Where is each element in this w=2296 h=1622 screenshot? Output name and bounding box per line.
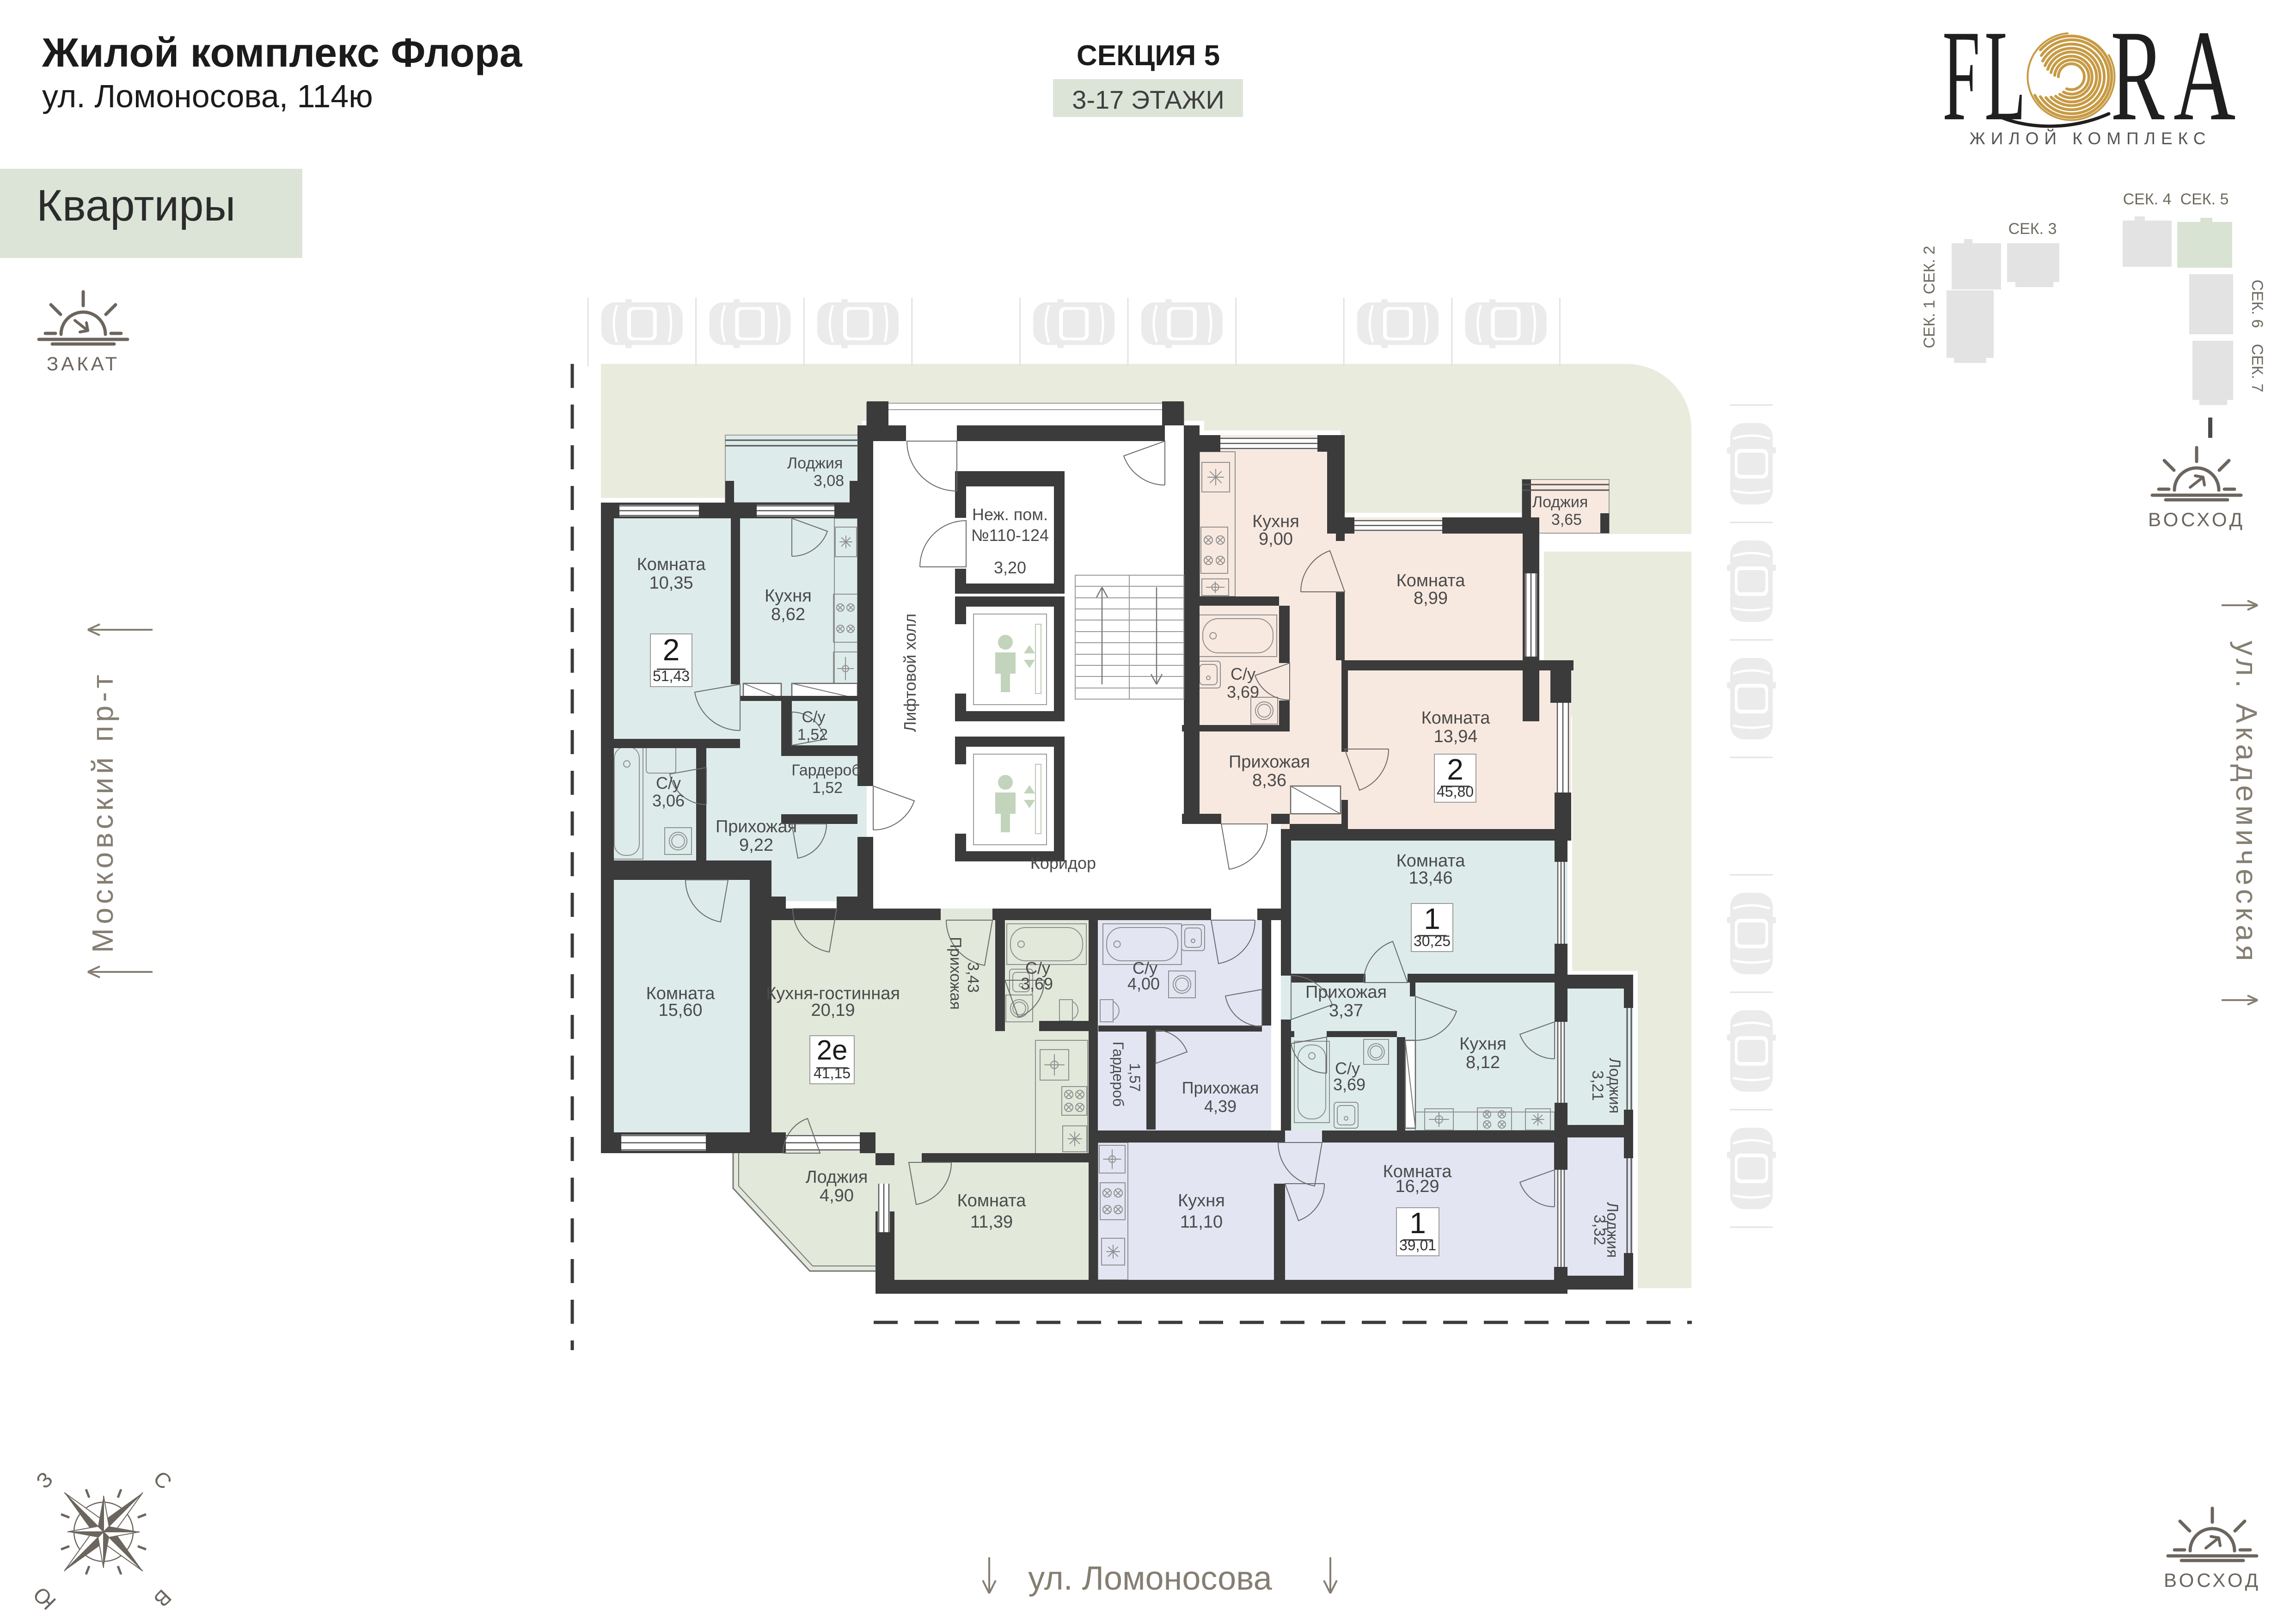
svg-text:2: 2 bbox=[1447, 753, 1463, 786]
svg-text:Комната: Комната bbox=[1396, 851, 1466, 871]
svg-text:Гардероб: Гардероб bbox=[791, 762, 861, 779]
svg-text:Комната: Комната bbox=[1421, 708, 1491, 728]
svg-text:Московский пр-т: Московский пр-т bbox=[86, 671, 119, 952]
svg-text:С/у: С/у bbox=[656, 774, 681, 793]
svg-text:3,37: 3,37 bbox=[1329, 1001, 1363, 1020]
svg-text:4,90: 4,90 bbox=[820, 1186, 854, 1205]
svg-text:15,60: 15,60 bbox=[658, 1001, 702, 1020]
svg-text:ЖИЛОЙ КОМПЛЕКС: ЖИЛОЙ КОМПЛЕКС bbox=[1970, 129, 2211, 148]
svg-text:СЕК. 3: СЕК. 3 bbox=[2008, 220, 2057, 238]
svg-text:11,39: 11,39 bbox=[970, 1212, 1013, 1232]
svg-text:Комната: Комната bbox=[957, 1191, 1027, 1210]
svg-text:45,80: 45,80 bbox=[1437, 783, 1474, 800]
svg-text:СЕКЦИЯ 5: СЕКЦИЯ 5 bbox=[1077, 40, 1220, 72]
svg-text:1: 1 bbox=[1424, 902, 1440, 935]
svg-text:2е: 2е bbox=[817, 1035, 848, 1066]
svg-text:Прихожая: Прихожая bbox=[1182, 1078, 1259, 1097]
svg-text:Неж. пом.: Неж. пом. bbox=[972, 505, 1048, 524]
svg-text:Гардероб: Гардероб bbox=[1110, 1042, 1127, 1107]
svg-text:8,99: 8,99 bbox=[1414, 589, 1448, 608]
svg-text:Комната: Комната bbox=[1396, 571, 1466, 590]
svg-text:ул. Академическая: ул. Академическая bbox=[2230, 641, 2263, 965]
svg-text:1,57: 1,57 bbox=[1127, 1063, 1143, 1092]
svg-text:Лоджия: Лоджия bbox=[1606, 1058, 1623, 1113]
svg-text:39,01: 39,01 bbox=[1399, 1237, 1436, 1253]
svg-text:Лоджия: Лоджия bbox=[787, 455, 843, 472]
svg-text:3,69: 3,69 bbox=[1227, 682, 1259, 701]
svg-text:3,69: 3,69 bbox=[1021, 974, 1053, 993]
svg-text:30,25: 30,25 bbox=[1414, 933, 1451, 949]
svg-text:Прихожая: Прихожая bbox=[947, 937, 964, 1010]
svg-text:Прихожая: Прихожая bbox=[1229, 752, 1310, 772]
svg-text:Комната: Комната bbox=[637, 555, 706, 574]
svg-text:13,46: 13,46 bbox=[1408, 868, 1452, 888]
svg-text:СЕК. 6: СЕК. 6 bbox=[2248, 280, 2266, 328]
svg-text:СЕК. 1: СЕК. 1 bbox=[1921, 300, 1938, 349]
svg-text:41,15: 41,15 bbox=[814, 1065, 851, 1081]
svg-text:A: A bbox=[2174, 3, 2235, 148]
svg-text:Лифтовой холл: Лифтовой холл bbox=[900, 614, 919, 732]
svg-text:1,52: 1,52 bbox=[797, 726, 828, 743]
svg-text:51,43: 51,43 bbox=[653, 668, 690, 684]
svg-text:3,08: 3,08 bbox=[814, 472, 844, 490]
svg-text:СЕК. 5: СЕК. 5 bbox=[2180, 190, 2229, 208]
svg-text:Кухня: Кухня bbox=[1459, 1034, 1506, 1054]
svg-text:Прихожая: Прихожая bbox=[716, 817, 797, 836]
svg-text:L: L bbox=[1984, 3, 2026, 147]
svg-text:Кухня: Кухня bbox=[1178, 1191, 1225, 1210]
svg-text:9,22: 9,22 bbox=[739, 836, 773, 855]
svg-text:ВОСХОД: ВОСХОД bbox=[2148, 509, 2245, 530]
svg-text:16,29: 16,29 bbox=[1395, 1177, 1439, 1196]
svg-text:Квартиры: Квартиры bbox=[37, 181, 236, 230]
svg-text:R: R bbox=[2111, 3, 2165, 148]
svg-text:20,19: 20,19 bbox=[811, 1001, 855, 1020]
svg-text:СЕК. 2: СЕК. 2 bbox=[1921, 246, 1938, 295]
svg-text:СЕК. 7: СЕК. 7 bbox=[2248, 344, 2266, 393]
svg-text:3,20: 3,20 bbox=[994, 558, 1026, 577]
svg-text:3,65: 3,65 bbox=[1551, 511, 1582, 528]
svg-text:8,36: 8,36 bbox=[1252, 771, 1286, 790]
svg-text:Лоджия: Лоджия bbox=[1532, 493, 1588, 511]
svg-text:9,00: 9,00 bbox=[1259, 529, 1293, 549]
svg-text:11,10: 11,10 bbox=[1180, 1212, 1223, 1232]
svg-text:3,43: 3,43 bbox=[964, 962, 982, 993]
svg-text:4,00: 4,00 bbox=[1127, 974, 1160, 993]
svg-text:СЕК. 4: СЕК. 4 bbox=[2123, 190, 2172, 208]
svg-text:8,62: 8,62 bbox=[771, 605, 805, 624]
svg-text:13,94: 13,94 bbox=[1433, 727, 1477, 746]
svg-text:3,21: 3,21 bbox=[1589, 1070, 1606, 1101]
svg-text:4,39: 4,39 bbox=[1204, 1097, 1237, 1116]
svg-text:3-17 ЭТАЖИ: 3-17 ЭТАЖИ bbox=[1072, 85, 1225, 114]
svg-text:Лоджия: Лоджия bbox=[806, 1167, 868, 1187]
svg-text:С/у: С/у bbox=[1231, 664, 1255, 683]
svg-text:Жилой комплекс Флора: Жилой комплекс Флора bbox=[42, 30, 523, 75]
svg-text:ЗАКАТ: ЗАКАТ bbox=[47, 353, 120, 375]
svg-text:1: 1 bbox=[1409, 1206, 1426, 1240]
svg-text:2: 2 bbox=[663, 633, 680, 667]
svg-text:ул. Ломоносова, 114ю: ул. Ломоносова, 114ю bbox=[42, 78, 373, 114]
svg-text:Коридор: Коридор bbox=[1030, 854, 1096, 872]
svg-text:3,32: 3,32 bbox=[1591, 1215, 1608, 1245]
svg-text:8,12: 8,12 bbox=[1466, 1053, 1500, 1072]
svg-text:№110-124: №110-124 bbox=[971, 526, 1049, 545]
svg-text:ВОСХОД: ВОСХОД bbox=[2164, 1569, 2261, 1591]
svg-text:Прихожая: Прихожая bbox=[1305, 983, 1387, 1002]
svg-text:3,06: 3,06 bbox=[652, 791, 685, 810]
svg-text:Кухня: Кухня bbox=[765, 586, 812, 606]
svg-text:ул. Ломоносова: ул. Ломоносова bbox=[1028, 1560, 1272, 1597]
svg-text:Кухня: Кухня bbox=[1252, 512, 1299, 531]
svg-text:1,52: 1,52 bbox=[812, 779, 843, 797]
svg-text:10,35: 10,35 bbox=[649, 573, 693, 593]
svg-text:3,69: 3,69 bbox=[1333, 1075, 1365, 1094]
svg-text:С/у: С/у bbox=[802, 708, 826, 726]
svg-text:F: F bbox=[1942, 3, 1980, 147]
